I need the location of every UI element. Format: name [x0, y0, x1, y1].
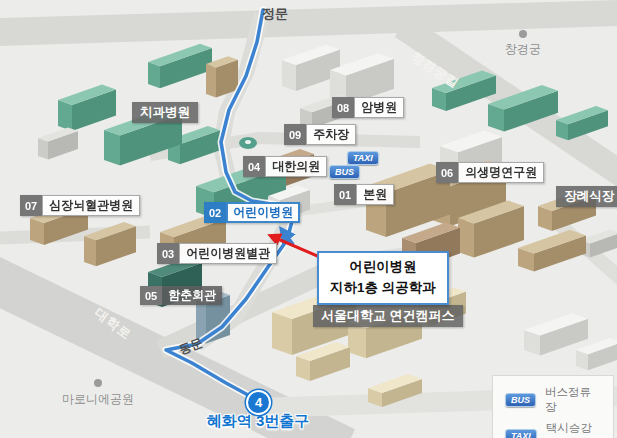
dental-hospital-label: 치과병원: [132, 102, 198, 123]
campus-map: 정문 동문 창경궁 마로니에공원 창경궁길 대학로 치과병원 장례식장 서울대학…: [0, 0, 617, 438]
poi-label: 심장뇌혈관병원: [42, 195, 140, 216]
legend: BUS 버스정류장 TAXI 택시승강장: [492, 375, 614, 438]
changgyeonggung-label: 창경궁: [505, 41, 541, 58]
changgyeonggung-dot: [519, 30, 527, 38]
poi-number-badge: 09: [284, 124, 306, 145]
poi-number-badge: 06: [436, 162, 458, 183]
poi-label: 함춘회관: [162, 286, 222, 305]
legend-row-taxi: TAXI 택시승강장: [505, 421, 601, 438]
poi-03-childrens-annex: 03 어린이병원별관: [157, 243, 277, 264]
poi-07-cardio-hospital: 07 심장뇌혈관병원: [20, 195, 140, 216]
map-base-graphics: [0, 0, 617, 438]
poi-label: 의생명연구원: [458, 162, 544, 183]
bus-stop-badge: BUS: [329, 165, 360, 179]
poi-06-biomedical-research: 06 의생명연구원: [436, 162, 544, 183]
main-gate-label: 정문: [262, 5, 288, 23]
poi-label: 어린이병원별관: [179, 243, 277, 264]
legend-taxi-badge: TAXI: [505, 429, 537, 438]
poi-number-badge: 08: [332, 97, 354, 118]
poi-02-childrens-hospital: 02 어린이병원: [204, 202, 300, 223]
poi-number-badge: 01: [334, 184, 356, 205]
legend-bus-label: 버스정류장: [545, 385, 601, 415]
poi-label: 대한의원: [265, 156, 327, 177]
poi-05-hamchun-hall: 05 함춘회관: [140, 286, 222, 305]
yeongeon-campus-label: 서울대학교 연건캠퍼스: [313, 305, 463, 327]
funeral-hall-label: 장례식장: [556, 186, 617, 207]
poi-number-badge: 03: [157, 243, 179, 264]
poi-09-parking: 09 주차장: [284, 124, 356, 145]
poi-label: 어린이병원: [226, 202, 300, 223]
maronie-park-dot: [94, 379, 102, 387]
legend-taxi-label: 택시승강장: [546, 421, 601, 438]
callout-line2: 지하1층 의공학과: [330, 278, 436, 299]
poi-number-badge: 02: [204, 202, 226, 223]
destination-callout: 어린이병원 지하1층 의공학과: [317, 251, 449, 305]
maronie-park-label: 마로니에공원: [62, 391, 134, 408]
poi-08-cancer-hospital: 08 암병원: [332, 97, 404, 118]
poi-01-main-hospital: 01 본원: [334, 184, 394, 205]
legend-bus-badge: BUS: [505, 393, 536, 407]
poi-number-badge: 04: [243, 156, 265, 177]
callout-line1: 어린이병원: [330, 257, 436, 278]
poi-04-daehan-clinic: 04 대한의원: [243, 156, 327, 177]
legend-row-bus: BUS 버스정류장: [505, 385, 601, 415]
poi-label: 암병원: [354, 97, 404, 118]
poi-number-badge: 05: [140, 286, 162, 305]
poi-label: 주차장: [306, 124, 356, 145]
subway-line-4-badge: 4: [246, 390, 271, 415]
poi-label: 본원: [356, 184, 394, 205]
poi-number-badge: 07: [20, 195, 42, 216]
taxi-stand-badge: TAXI: [347, 151, 379, 165]
fountain: [239, 137, 257, 149]
